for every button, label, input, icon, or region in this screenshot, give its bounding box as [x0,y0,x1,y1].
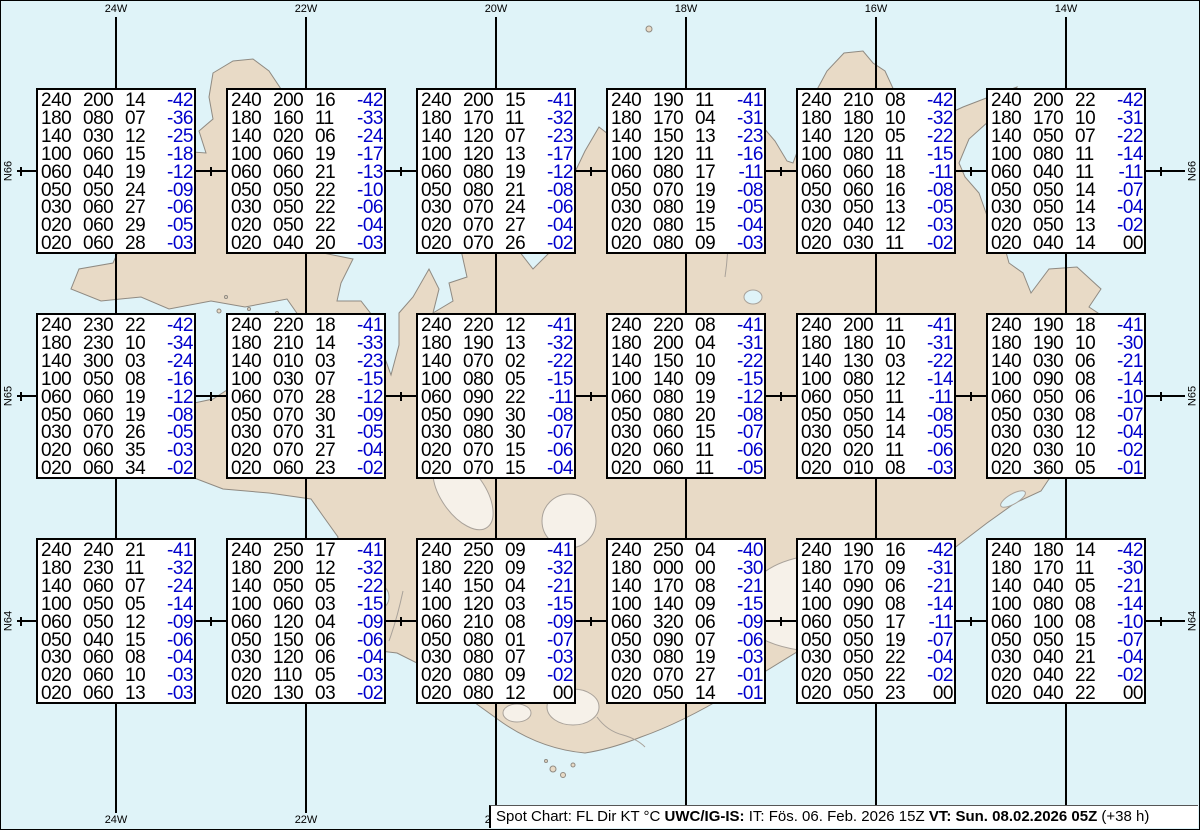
flight-level: 020 [231,235,273,253]
wind-direction: 360 [1033,460,1075,478]
wind-direction: 060 [273,146,315,164]
spot-box-r0c2: 24020015-4118017011-3214012007-231001201… [416,88,576,254]
temperature-c: -12 [156,164,193,182]
wind-direction: 120 [463,146,505,164]
spot-level-row: 02006023-02 [231,460,384,478]
flight-level: 100 [801,146,843,164]
wind-speed-kt: 28 [315,389,346,407]
temperature-c: -12 [346,389,383,407]
wind-speed-kt: 19 [125,389,156,407]
wind-speed-kt: 13 [125,685,156,703]
wind-direction: 320 [653,614,695,632]
spot-level-row: 10008011-15 [801,146,954,164]
flight-level: 100 [801,596,843,614]
wind-direction: 080 [463,685,505,703]
spot-level-row: 02006013-03 [41,685,194,703]
wind-speed-kt: 22 [505,389,536,407]
wind-direction: 120 [653,146,695,164]
spot-box-r2c4: 24019016-4218017009-3114009006-211000900… [796,538,956,704]
wind-direction: 080 [653,235,695,253]
flight-level: 020 [611,685,653,703]
wind-speed-kt: 08 [1075,596,1106,614]
wind-speed-kt: 28 [125,235,156,253]
longitude-label-bottom-24W: 24W [105,814,128,826]
wind-speed-kt: 22 [1075,685,1106,703]
spot-level-row: 06004011-11 [991,164,1144,182]
temperature-c: -16 [726,146,763,164]
flight-level: 100 [421,371,463,389]
spot-level-row: 02003011-02 [801,235,954,253]
graticule-tick [210,617,212,626]
spot-chart-frame: Spot Chart: FL Dir KT °C UWC/IG-IS: IT: … [0,0,1200,830]
flight-level: 020 [231,460,273,478]
flight-level: 020 [801,685,843,703]
flight-level: 100 [611,146,653,164]
spot-level-row: 06006021-13 [231,164,384,182]
spot-level-row: 06009022-11 [421,389,574,407]
temperature-c: -11 [916,164,953,182]
spot-level-row: 10009008-14 [991,371,1144,389]
wind-direction: 080 [843,146,885,164]
spot-box-r1c2: 24022012-4118019013-3214007002-221000800… [416,313,576,479]
flight-level: 100 [611,596,653,614]
wind-speed-kt: 19 [315,146,346,164]
spot-level-row: 02006034-02 [41,460,194,478]
temperature-c: -15 [346,371,383,389]
wind-speed-kt: 09 [695,371,726,389]
spot-level-row: 02007026-02 [421,235,574,253]
wind-speed-kt: 17 [695,164,726,182]
latitude-label-left-N66: N66 [4,161,15,181]
spot-level-row: 0200502300 [801,685,954,703]
spot-box-r0c3: 24019011-4118017004-3114015013-231001201… [606,88,766,254]
wind-speed-kt: 19 [695,389,726,407]
flight-level: 100 [231,371,273,389]
temperature-c: 00 [1106,685,1143,703]
wind-direction: 080 [653,389,695,407]
spot-level-row: 10009008-14 [801,596,954,614]
spot-level-row: 10006015-18 [41,146,194,164]
flight-level: 060 [991,164,1033,182]
temperature-c: -01 [1106,460,1143,478]
temperature-c: -03 [916,460,953,478]
flight-level: 020 [611,235,653,253]
temperature-c: -02 [346,685,383,703]
glacier-eyjafjallajokull [503,704,531,722]
spot-box-r2c0: 24024021-4118023011-3214006007-241000500… [36,538,196,704]
wind-direction: 100 [1033,614,1075,632]
wind-speed-kt: 09 [695,235,726,253]
spot-level-row: 0200801200 [421,685,574,703]
spot-level-row: 10008012-14 [801,371,954,389]
wind-direction: 120 [463,596,505,614]
flight-level: 060 [231,614,273,632]
wind-speed-kt: 23 [315,460,346,478]
spot-level-row: 02013003-02 [231,685,384,703]
graticule-tick [400,167,402,176]
wind-speed-kt: 19 [125,164,156,182]
wind-direction: 080 [463,371,505,389]
spot-level-row: 06007028-12 [231,389,384,407]
spot-level-row: 02005014-01 [611,685,764,703]
wind-direction: 060 [273,460,315,478]
wind-direction: 080 [1033,146,1075,164]
graticule-tick [590,167,592,176]
wind-direction: 050 [843,614,885,632]
wind-speed-kt: 11 [1075,146,1106,164]
wind-direction: 140 [653,596,695,614]
flight-level: 060 [611,614,653,632]
wind-speed-kt: 15 [505,460,536,478]
wind-direction: 080 [653,164,695,182]
flight-level: 060 [991,614,1033,632]
status-bar-segment-bold: VT: Sun. 08.02.2026 05Z [929,808,1097,825]
spot-level-row: 10008005-15 [421,371,574,389]
flight-level: 100 [41,146,83,164]
wind-direction: 050 [83,614,125,632]
spot-box-r1c0: 24023022-4218023010-3414030003-241000500… [36,313,196,479]
temperature-c: -17 [536,146,573,164]
temperature-c: -15 [536,371,573,389]
temperature-c: -13 [346,164,383,182]
spot-level-row: 06006018-11 [801,164,954,182]
wind-speed-kt: 12 [885,371,916,389]
temperature-c: -03 [346,235,383,253]
temperature-c: -14 [916,596,953,614]
wind-speed-kt: 03 [505,596,536,614]
wind-direction: 140 [653,371,695,389]
wind-direction: 050 [653,685,695,703]
wind-speed-kt: 08 [1075,371,1106,389]
graticule-tick [400,617,402,626]
graticule-tick [20,617,22,626]
graticule-tick [210,167,212,176]
wind-direction: 090 [843,596,885,614]
temperature-c: -09 [346,614,383,632]
spot-level-row: 06006019-12 [41,389,194,407]
flight-level: 020 [991,685,1033,703]
flight-level: 100 [991,596,1033,614]
wind-speed-kt: 11 [1075,164,1106,182]
temperature-c: -14 [1106,371,1143,389]
temperature-c: -14 [156,596,193,614]
wind-speed-kt: 08 [885,460,916,478]
flight-level: 100 [231,146,273,164]
wind-direction: 070 [273,389,315,407]
wind-direction: 040 [1033,164,1075,182]
spot-level-row: 10008008-14 [991,596,1144,614]
status-bar-segment: (+38 h) [1097,808,1149,825]
latitude-label-right-N64: N64 [1188,611,1199,631]
longitude-label-bottom-22W: 22W [295,814,318,826]
wind-direction: 060 [843,164,885,182]
flight-level: 060 [801,389,843,407]
graticule-tick [210,392,212,401]
wind-speed-kt: 08 [1075,614,1106,632]
longitude-label-top-24W: 24W [105,3,128,15]
wind-direction: 030 [273,371,315,389]
spot-level-row: 10012003-15 [421,596,574,614]
spot-level-row: 06010008-10 [991,614,1144,632]
flight-level: 100 [421,146,463,164]
wind-speed-kt: 03 [315,596,346,614]
spot-level-row: 02036005-01 [991,460,1144,478]
wind-direction: 060 [83,685,125,703]
graticule-tick [400,392,402,401]
temperature-c: -10 [1106,389,1143,407]
wind-speed-kt: 26 [505,235,536,253]
flight-level: 060 [991,389,1033,407]
graticule-tick [1160,617,1162,626]
spot-level-row: 06005012-09 [41,614,194,632]
wind-direction: 060 [273,164,315,182]
graticule-tick [780,167,782,176]
temperature-c: -11 [536,389,573,407]
flight-level: 060 [801,614,843,632]
islands-vestmannaeyjar [545,760,576,778]
spot-level-row: 06032006-09 [611,614,764,632]
spot-level-row: 10005005-14 [41,596,194,614]
temperature-c: 00 [1106,235,1143,253]
spot-level-row: 02006011-05 [611,460,764,478]
temperature-c: -03 [156,235,193,253]
wind-speed-kt: 08 [505,614,536,632]
flight-level: 100 [41,596,83,614]
graticule-tick [1160,392,1162,401]
wind-direction: 080 [1033,596,1075,614]
flight-level: 100 [41,371,83,389]
spot-level-row: 06004019-12 [41,164,194,182]
spot-level-row: 02004020-03 [231,235,384,253]
wind-speed-kt: 19 [505,164,536,182]
flight-level: 020 [991,460,1033,478]
wind-speed-kt: 06 [695,614,726,632]
status-bar-segment: Spot Chart: FL Dir KT °C [496,808,665,825]
temperature-c: -12 [726,389,763,407]
temperature-c: -02 [916,235,953,253]
wind-direction: 070 [463,235,505,253]
spot-level-row: 10014009-15 [611,596,764,614]
spot-level-row: 10014009-15 [611,371,764,389]
temperature-c: -11 [916,614,953,632]
graticule-tick [780,392,782,401]
wind-speed-kt: 07 [315,371,346,389]
temperature-c: -15 [916,146,953,164]
spot-box-r2c2: 24025009-4118022009-3214015004-211001200… [416,538,576,704]
temperature-c: -14 [1106,146,1143,164]
flight-level: 020 [421,460,463,478]
spot-box-r2c5: 24018014-4218017011-3014004005-211000800… [986,538,1146,704]
temperature-c: -02 [346,460,383,478]
spot-box-r1c5: 24019018-4118019010-3014003006-211000900… [986,313,1146,479]
wind-speed-kt: 13 [505,146,536,164]
wind-speed-kt: 08 [885,596,916,614]
temperature-c: -10 [1106,614,1143,632]
longitude-label-top-16W: 16W [865,3,888,15]
wind-direction: 030 [843,235,885,253]
wind-direction: 050 [843,685,885,703]
spot-level-row: 06008017-11 [611,164,764,182]
flight-level: 020 [421,685,463,703]
temperature-c: -14 [916,371,953,389]
wind-direction: 040 [1033,235,1075,253]
status-bar: Spot Chart: FL Dir KT °C UWC/IG-IS: IT: … [489,805,1198,828]
flight-level: 060 [421,389,463,407]
flight-level: 060 [41,389,83,407]
wind-direction: 050 [83,371,125,389]
wind-speed-kt: 18 [885,164,916,182]
wind-direction: 040 [273,235,315,253]
spot-level-row: 10006003-15 [231,596,384,614]
spot-level-row: 10012013-17 [421,146,574,164]
latitude-label-right-N66: N66 [1188,161,1199,181]
wind-speed-kt: 11 [885,389,916,407]
spot-level-row: 06021008-09 [421,614,574,632]
wind-direction: 040 [1033,685,1075,703]
temperature-c: -04 [536,460,573,478]
wind-speed-kt: 34 [125,460,156,478]
longitude-label-top-14W: 14W [1055,3,1078,15]
wind-direction: 090 [1033,371,1075,389]
spot-level-row: 10005008-16 [41,371,194,389]
spot-level-row: 10008011-14 [991,146,1144,164]
wind-speed-kt: 21 [315,164,346,182]
temperature-c: -18 [156,146,193,164]
flight-level: 020 [991,235,1033,253]
flight-level: 100 [991,146,1033,164]
wind-direction: 090 [463,389,505,407]
flight-level: 060 [231,389,273,407]
wind-speed-kt: 03 [315,685,346,703]
wind-speed-kt: 20 [315,235,346,253]
wind-speed-kt: 08 [125,371,156,389]
wind-speed-kt: 04 [315,614,346,632]
latitude-label-left-N65: N65 [4,386,15,406]
wind-direction: 080 [463,164,505,182]
spot-level-row: 10012011-16 [611,146,764,164]
spot-level-row: 06012004-09 [231,614,384,632]
flight-level: 020 [41,235,83,253]
temperature-c: -03 [726,235,763,253]
temperature-c: -02 [156,460,193,478]
flight-level: 060 [611,164,653,182]
flight-level: 020 [41,685,83,703]
flight-level: 060 [41,164,83,182]
temperature-c: -01 [726,685,763,703]
spot-box-r1c4: 24020011-4118018010-3114013003-221000801… [796,313,956,479]
spot-box-r0c4: 24021008-4218018010-3214012005-221000801… [796,88,956,254]
wind-speed-kt: 11 [885,235,916,253]
spot-level-row: 06008019-12 [611,389,764,407]
spot-box-r0c5: 24020022-4218017010-3114005007-221000801… [986,88,1146,254]
temperature-c: 00 [916,685,953,703]
wind-speed-kt: 05 [1075,460,1106,478]
spot-box-r2c3: 24025004-4018000000-3014017008-211001400… [606,538,766,704]
wind-speed-kt: 05 [125,596,156,614]
temperature-c: -05 [726,460,763,478]
wind-direction: 060 [83,460,125,478]
wind-direction: 060 [83,146,125,164]
wind-direction: 040 [83,164,125,182]
spot-level-row: 06008019-12 [421,164,574,182]
wind-direction: 120 [273,614,315,632]
flight-level: 100 [801,371,843,389]
wind-direction: 070 [463,460,505,478]
status-bar-segment-bold: UWC/IG-IS: [665,808,745,825]
flight-level: 100 [991,371,1033,389]
wind-direction: 050 [83,596,125,614]
temperature-c: -15 [536,596,573,614]
flight-level: 100 [231,596,273,614]
wind-speed-kt: 17 [885,614,916,632]
lake-myvatn [744,290,762,304]
flight-level: 020 [231,685,273,703]
wind-speed-kt: 14 [1075,235,1106,253]
temperature-c: -03 [156,685,193,703]
flight-level: 020 [801,460,843,478]
temperature-c: -12 [536,164,573,182]
spot-level-row: 10003007-15 [231,371,384,389]
temperature-c: -14 [1106,596,1143,614]
flight-level: 020 [611,460,653,478]
graticule-tick [590,392,592,401]
flight-level: 020 [41,460,83,478]
temperature-c: -15 [726,596,763,614]
island-grimsey [646,26,652,32]
flight-level: 060 [231,164,273,182]
flight-level: 100 [611,371,653,389]
temperature-c: -11 [916,389,953,407]
wind-speed-kt: 06 [1075,389,1106,407]
spot-box-r1c1: 24022018-4118021014-3314001003-231000300… [226,313,386,479]
wind-direction: 060 [83,235,125,253]
spot-level-row: 06005017-11 [801,614,954,632]
graticule-tick [970,617,972,626]
wind-speed-kt: 09 [695,596,726,614]
wind-speed-kt: 23 [885,685,916,703]
spot-level-row: 10006019-17 [231,146,384,164]
temperature-c: -12 [156,389,193,407]
temperature-c: -17 [346,146,383,164]
longitude-label-top-18W: 18W [675,3,698,15]
graticule-tick [20,392,22,401]
spot-box-r2c1: 24025017-4118020012-3214005005-221000600… [226,538,386,704]
longitude-label-top-20W: 20W [485,3,508,15]
graticule-tick [20,167,22,176]
spot-level-row: 02006028-03 [41,235,194,253]
graticule-tick [970,167,972,176]
spot-level-row: 02008009-03 [611,235,764,253]
spot-level-row: 02007015-04 [421,460,574,478]
wind-speed-kt: 11 [695,460,726,478]
flight-level: 020 [421,235,463,253]
temperature-c: -09 [536,614,573,632]
graticule-tick [1160,167,1162,176]
spot-level-row: 0200401400 [991,235,1144,253]
latitude-label-right-N65: N65 [1188,386,1199,406]
wind-direction: 210 [463,614,505,632]
spot-level-row: 06005011-11 [801,389,954,407]
wind-speed-kt: 11 [695,146,726,164]
flight-level: 060 [41,614,83,632]
spot-box-r0c0: 24020014-4218008007-3614003012-251000601… [36,88,196,254]
wind-speed-kt: 11 [885,146,916,164]
flight-level: 060 [421,614,463,632]
wind-direction: 010 [843,460,885,478]
graticule-tick [970,392,972,401]
wind-direction: 060 [83,389,125,407]
latitude-label-left-N64: N64 [4,611,15,631]
